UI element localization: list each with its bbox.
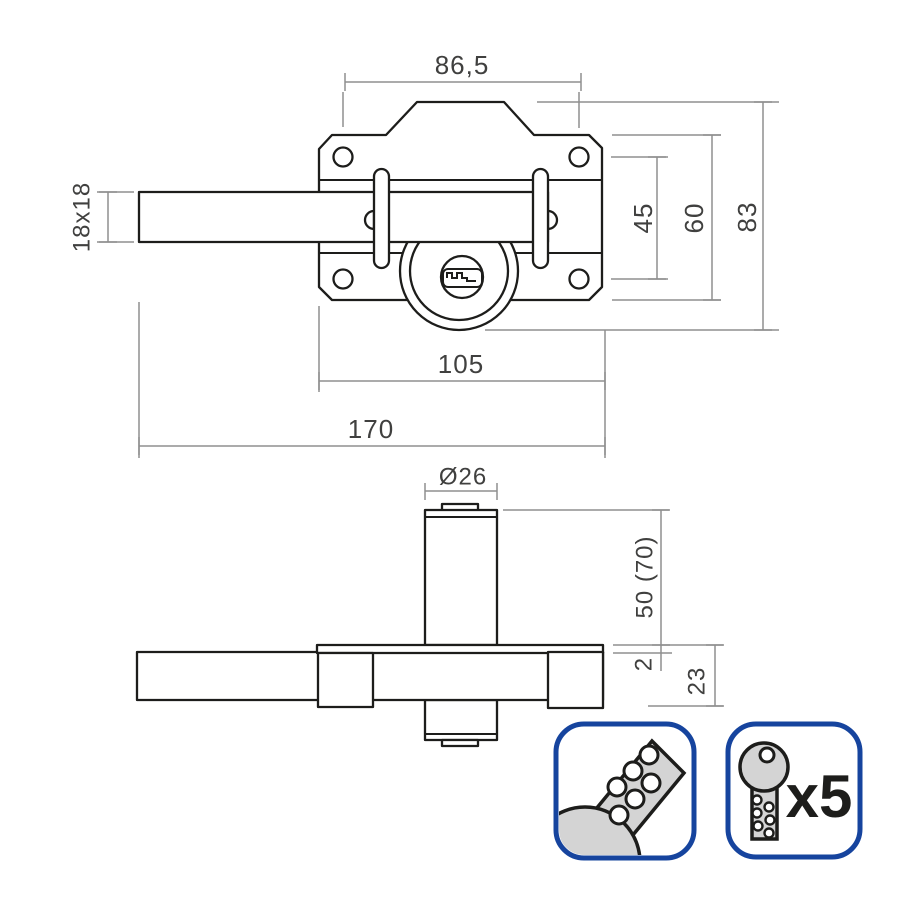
- screw-hole: [570, 270, 589, 289]
- left-guide-side: [318, 653, 373, 707]
- dim-total-height: 83: [732, 202, 762, 233]
- dim-cylinder-diameter: Ø26: [439, 463, 487, 490]
- dim-hole-spacing-v: 45: [628, 203, 658, 234]
- dim-plate-width: 105: [438, 349, 484, 379]
- right-catch-bump: [548, 211, 557, 229]
- cylinder-bottom-cap: [442, 740, 478, 746]
- keys-count-label: x5: [786, 763, 853, 830]
- dim-cylinder-length: 50 (70): [631, 535, 658, 618]
- left-catch-bump: [365, 211, 374, 229]
- dim-body-depth: 23: [683, 667, 710, 696]
- right-bolt-guide: [533, 169, 548, 268]
- lock-technical-drawing: 86,5 18x18 45 60 83 105: [0, 0, 900, 900]
- technical-drawing-page: 86,5 18x18 45 60 83 105: [0, 0, 900, 900]
- dim-bolt-section: 18x18: [68, 182, 95, 252]
- dim-plate-thickness: 2: [630, 657, 657, 671]
- badge-dimple-key: [530, 724, 694, 900]
- side-view: [137, 504, 603, 746]
- cylinder-body: [425, 510, 497, 645]
- dim-total-width: 170: [348, 414, 394, 444]
- front-view: [139, 102, 602, 330]
- right-guide-side: [548, 652, 603, 708]
- badge-keys-count: x5: [728, 724, 860, 857]
- dim-hole-spacing-h: 86,5: [435, 50, 490, 80]
- screw-hole: [334, 148, 353, 167]
- screw-hole: [570, 148, 589, 167]
- dim-plate-height: 60: [679, 203, 709, 234]
- screw-hole: [334, 270, 353, 289]
- bolt: [139, 192, 548, 242]
- left-bolt-guide: [374, 169, 389, 268]
